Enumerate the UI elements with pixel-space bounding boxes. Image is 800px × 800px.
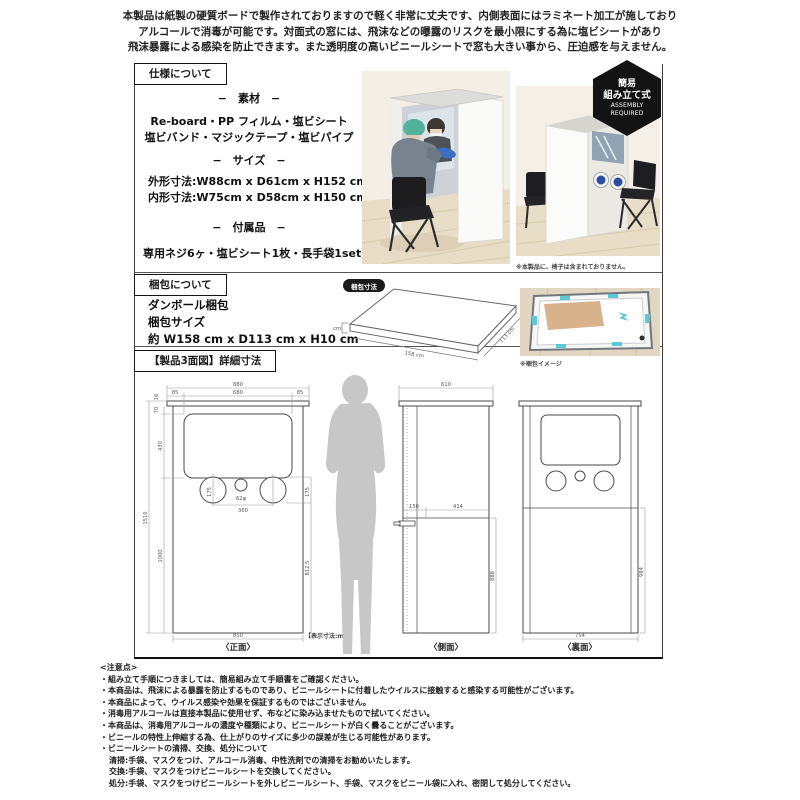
- note-item: 清掃:手袋、マスクをつけ、アルコール消毒、中性洗剤での清掃をお勧めいたします。: [100, 755, 720, 767]
- accessory-heading: − 付属品 −: [138, 219, 360, 235]
- front-dim-window-h: 430: [158, 441, 164, 451]
- size-heading: − サイズ −: [138, 152, 360, 168]
- badge-line-1: 簡易: [618, 79, 636, 90]
- packphoto-cardboard: [544, 301, 604, 330]
- packphoto-hole: [640, 336, 645, 341]
- front-dim-right: 85: [297, 390, 304, 396]
- badge-line-4: REQUIRED: [610, 110, 643, 118]
- back-view-label: 〈裏面〉: [563, 642, 597, 653]
- spec-section-label: 仕様について: [134, 63, 227, 85]
- packing-dim-height: 10 cm: [332, 326, 341, 332]
- notes-title: <注意点>: [100, 662, 720, 674]
- badge-line-3: ASSEMBLY: [611, 102, 644, 110]
- size-line-outer: 外形寸法:W88cm x D61cm x H152 cm: [148, 173, 368, 189]
- front-dim-total-width: 880: [233, 382, 243, 388]
- note-item: ・ビニールの特性上伸縮する為、仕上がりのサイズに多少の誤差が生じる可能性がありま…: [100, 732, 720, 744]
- material-heading: − 素材 −: [138, 90, 360, 106]
- photo2-booth-front-panel: [546, 116, 588, 244]
- front-dim-circle: 175: [207, 487, 213, 497]
- front-dim-bottom-w: 850: [233, 633, 243, 639]
- side-dim-right-h: 888: [490, 571, 496, 581]
- note-item: ・ビニールシートの清掃、交換、処分について: [100, 743, 720, 755]
- photo1-surgical-cap: [403, 119, 425, 137]
- person-silhouette: [326, 375, 385, 654]
- packing-section-label: 梱包について: [134, 274, 227, 296]
- intro-line-2: アルコールで消毒が可能です。対面式の窓には、飛沫などの曝露のリスクを最小限にする…: [0, 25, 800, 41]
- photo2-chair-right-seat: [620, 188, 655, 200]
- front-dim-lower-h: 1000: [158, 549, 164, 562]
- packing-line-3: 約 W158 cm x D113 cm x H10 cm: [148, 331, 359, 347]
- packing-dim-width: 158 cm: [404, 350, 424, 359]
- product-spec-sheet: 本製品は紙製の硬質ボードで製作されておりますので軽く非常に丈夫です、内側表面には…: [0, 0, 800, 800]
- note-item: 処分:手袋、マスクをつけビニールシートを外しビニールシート、手袋、マスクをビニー…: [100, 778, 720, 790]
- side-dim-top: 610: [441, 382, 451, 388]
- chair-not-included-caption: ※本製品に、椅子は含まれておりません。: [516, 262, 629, 271]
- front-dim-circle-right: 175: [305, 487, 311, 497]
- photo2-glove-port-right-inner: [614, 178, 623, 187]
- material-line-2: 塩ビバンド・マジックテープ・塩ビパイプ: [138, 129, 360, 145]
- three-view-drawing: 880 85 680 85 70 16 430 1516 1000 850 17…: [137, 368, 660, 656]
- intro-line-1: 本製品は紙製の硬質ボードで製作されておりますので軽く非常に丈夫です、内側表面には…: [0, 9, 800, 25]
- section-divider-1: [134, 272, 662, 273]
- badge-line-2: 組み立て式: [603, 90, 651, 102]
- note-item: ・消毒用アルコールは直接本製品に使用せず、布などに染み込ませたもので拭いてくださ…: [100, 708, 720, 720]
- side-dim-seg1: 150: [409, 504, 419, 510]
- front-dim-hole: 62φ: [236, 496, 247, 502]
- note-item: 交換:手袋、マスクをつけビニールシートを交換してください。: [100, 766, 720, 778]
- front-dim-cap: 70: [154, 407, 160, 414]
- front-dim-mid: 680: [233, 390, 243, 396]
- front-dim-total-h: 1516: [143, 511, 149, 524]
- accessory-line: 専用ネジ6ヶ・塩ビシート1枚・長手袋1set: [143, 245, 361, 261]
- front-dim-pitch: 360: [238, 508, 248, 514]
- front-dim-cap2: 16: [154, 394, 160, 401]
- photo1-booth-right-panel: [458, 93, 503, 243]
- note-item: ・組み立て手順につきましては、簡易組み立て手順書をご確認ください。: [100, 674, 720, 686]
- size-line-inner: 内形寸法:W75cm x D58cm x H150 cm: [148, 189, 368, 205]
- packing-photo-caption: ※梱包イメージ: [520, 359, 562, 368]
- intro-paragraph: 本製品は紙製の硬質ボードで製作されておりますので軽く非常に丈夫です、内側表面には…: [0, 9, 800, 56]
- side-view-handle: [394, 521, 415, 526]
- back-view-outline: [519, 401, 641, 633]
- packing-box-outline: [350, 289, 516, 353]
- photo1-chair-back: [392, 177, 426, 211]
- notes-section: <注意点> ・組み立て手順につきましては、簡易組み立て手順書をご確認ください。 …: [100, 662, 720, 790]
- side-view-label: 〈側面〉: [429, 642, 463, 653]
- back-dim-bottom-w: 754: [575, 633, 586, 639]
- intro-line-3: 飛沫暴露による感染を防止できます。また透明度の高いビニールシートで窓も大きい事か…: [0, 40, 800, 56]
- note-item: ・本商品によって、ウイルス感染や効果を保証するものではございません。: [100, 697, 720, 709]
- front-view-label: 〈正面〉: [221, 642, 255, 653]
- photo2-glove-port-left-inner: [597, 176, 606, 185]
- back-dim-right-h: 984: [639, 566, 645, 577]
- packing-line-1: ダンボール梱包: [148, 297, 229, 313]
- side-dim-seg2: 414: [453, 504, 464, 510]
- front-dim-left: 85: [172, 390, 179, 396]
- note-item: ・本商品は、飛沫による暴露を防止するものであり、ビニールシートに付着したウイルス…: [100, 685, 720, 697]
- photo-booth-in-use: [362, 71, 510, 264]
- front-dim-right-h: 812.5: [305, 561, 311, 576]
- note-item: ・本商品は、消毒用アルコールの濃度や種類により、ビニールシートが白く曇ることがご…: [100, 720, 720, 732]
- packing-line-2: 梱包サイズ: [148, 314, 205, 330]
- packing-dimension-badge: 梱包寸法: [343, 279, 385, 292]
- photo-packed-flat: [520, 288, 660, 356]
- photo2-chair-right-back: [633, 160, 656, 190]
- drawing-section-label: 【製品3面図】詳細寸法: [134, 350, 276, 372]
- side-view-outline: [399, 401, 493, 633]
- front-view-outline: [167, 401, 309, 633]
- material-line-1: Re-board・PP フィルム・塩ビシート: [138, 113, 360, 129]
